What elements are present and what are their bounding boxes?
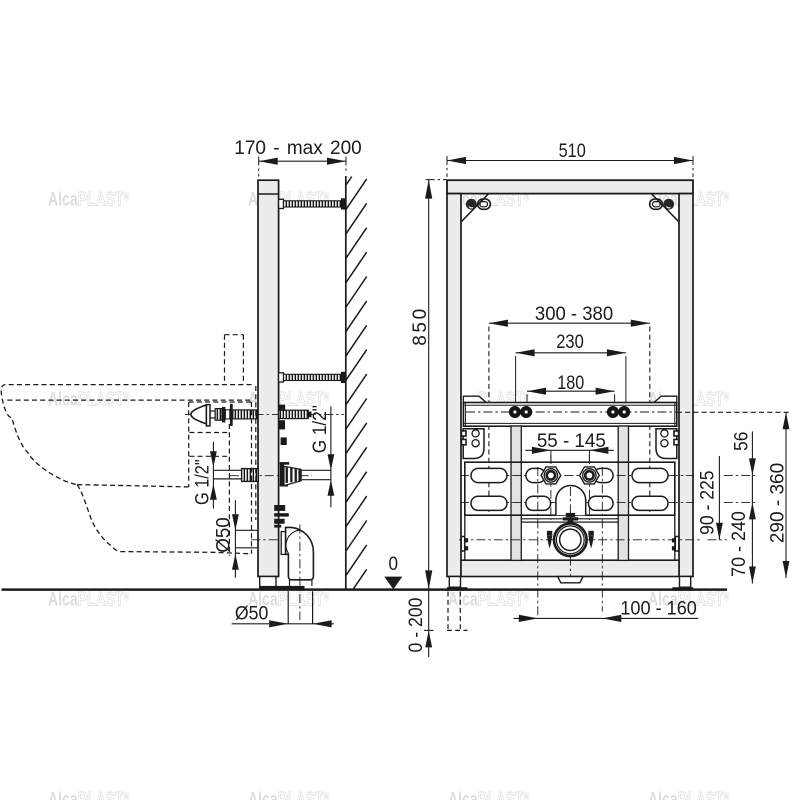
svg-text:90 - 225: 90 - 225 [696, 470, 718, 534]
svg-text:AlcaPLAST®: AlcaPLAST® [648, 788, 730, 800]
svg-text:AlcaPLAST®: AlcaPLAST® [48, 788, 130, 800]
svg-text:0 - 200: 0 - 200 [404, 598, 426, 653]
svg-text:55 - 145: 55 - 145 [537, 431, 606, 452]
svg-text:AlcaPLAST®: AlcaPLAST® [248, 788, 330, 800]
svg-text:300 - 380: 300 - 380 [535, 303, 613, 324]
svg-text:AlcaPLAST®: AlcaPLAST® [448, 788, 530, 800]
svg-text:850: 850 [410, 306, 431, 346]
svg-text:290 - 360: 290 - 360 [767, 463, 788, 543]
svg-text:G 1/2": G 1/2" [192, 459, 213, 505]
svg-text:100 - 160: 100 - 160 [620, 597, 697, 618]
svg-text:70 - 240: 70 - 240 [728, 511, 750, 577]
svg-text:170 - max 200: 170 - max 200 [234, 138, 361, 159]
svg-text:56: 56 [731, 432, 752, 451]
svg-text:0: 0 [389, 553, 399, 574]
svg-text:AlcaPLAST®: AlcaPLAST® [48, 188, 130, 210]
svg-text:Ø50: Ø50 [213, 517, 234, 553]
svg-text:AlcaPLAST®: AlcaPLAST® [48, 388, 130, 410]
svg-text:Ø50: Ø50 [235, 602, 268, 624]
svg-text:230: 230 [556, 331, 584, 352]
svg-text:G 1/2": G 1/2" [309, 405, 330, 453]
svg-text:510: 510 [559, 140, 586, 161]
svg-text:AlcaPLAST®: AlcaPLAST® [48, 588, 130, 610]
svg-text:180: 180 [557, 372, 584, 394]
